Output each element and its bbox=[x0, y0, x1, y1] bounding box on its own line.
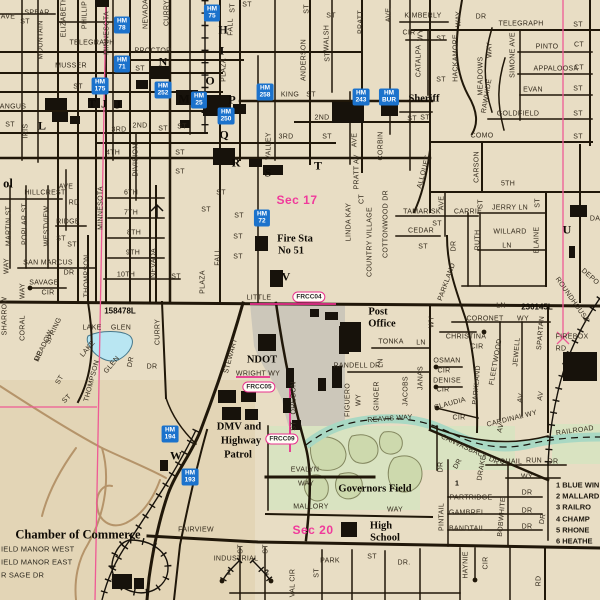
street-label-minnesota: MINNESOTA bbox=[104, 11, 111, 55]
street-label-firebox: FIREBOX bbox=[556, 334, 589, 341]
street-label-rd: RD bbox=[536, 576, 543, 587]
street-label-5th: 5TH bbox=[501, 181, 515, 188]
street-label-st: ST bbox=[67, 242, 77, 249]
map-canvas[interactable]: SPEARAVESTMOUNTAINELIZABETHPHILLIPMINNES… bbox=[0, 0, 600, 600]
street-label-san-marcus: SAN MARCUS bbox=[23, 260, 73, 267]
letter-label-o: O bbox=[205, 74, 214, 89]
street-label-st: ST bbox=[5, 122, 15, 129]
hm-marker-194: HM194 bbox=[162, 426, 179, 443]
street-label-cir: CIR bbox=[471, 344, 484, 351]
hm-marker-bur: HMBUR bbox=[379, 89, 399, 106]
hm-marker-75: HM75 bbox=[204, 5, 220, 22]
street-label-rd: RD bbox=[69, 200, 80, 207]
street-label-osman: OSMAN bbox=[433, 358, 460, 365]
letter-label-h: H bbox=[218, 23, 227, 38]
hm-marker-72: HM72 bbox=[254, 210, 270, 227]
street-label-ruth: RUTH bbox=[475, 230, 482, 251]
street-label-wy: WY bbox=[356, 394, 363, 406]
street-label-musser: MUSSER bbox=[55, 63, 87, 70]
hm-marker-252: HM252 bbox=[155, 82, 172, 99]
street-label-cir: CIR bbox=[453, 415, 466, 422]
street-label-st: ST bbox=[73, 84, 83, 91]
street-label-ln: LN bbox=[378, 358, 385, 368]
num-label-1: 1 bbox=[227, 570, 231, 577]
street-label-rd: RD bbox=[556, 346, 567, 353]
street-label-ln: LN bbox=[502, 243, 512, 250]
street-label-glen: GLEN bbox=[111, 325, 131, 332]
letter-label-s: S bbox=[265, 166, 272, 181]
street-label-canvasback-dr: CANVASBACK DR bbox=[440, 433, 500, 466]
street-label-9th: 9TH bbox=[126, 250, 140, 257]
street-label-2nd: 2ND bbox=[133, 123, 148, 130]
poi-label-no-51: No 51 bbox=[278, 246, 304, 257]
street-label-run: RUN bbox=[526, 458, 542, 465]
letter-label-u: U bbox=[563, 223, 572, 238]
street-label-lake: LAKE bbox=[82, 325, 101, 332]
street-label-st: ST bbox=[135, 66, 145, 73]
street-label-st: ST bbox=[436, 36, 446, 43]
street-label-st: ST bbox=[322, 134, 332, 141]
street-label-industrial: INDUSTRIAL bbox=[214, 556, 259, 563]
street-label-walsh: WALSH bbox=[324, 25, 331, 51]
street-label-oregon: OREGON bbox=[291, 382, 298, 415]
street-label-haynie: HAYNIE bbox=[463, 551, 470, 578]
street-label-iris: IRIS bbox=[23, 124, 30, 139]
street-label-way: WAY bbox=[487, 42, 494, 58]
letter-label-n: N bbox=[159, 55, 168, 70]
street-label-dr: DR bbox=[34, 350, 45, 363]
street-label-wy: WY bbox=[429, 316, 436, 328]
street-label-st: ST bbox=[56, 236, 66, 243]
street-label-dr: DR. bbox=[398, 560, 411, 567]
letter-label-m: M bbox=[178, 92, 189, 107]
poi-label-post: Post bbox=[368, 307, 387, 318]
street-label-st: ST bbox=[326, 13, 336, 20]
street-label-st: ST bbox=[436, 77, 446, 84]
street-label-depo: DEPO bbox=[580, 267, 600, 286]
frcc-label-frcc05: FRCC05 bbox=[242, 382, 275, 393]
street-label-st: ST bbox=[216, 190, 226, 197]
street-label-lake: LAKE bbox=[79, 339, 97, 358]
street-label-sharrow: SHARROW bbox=[2, 297, 9, 336]
street-label-dr: DR bbox=[548, 459, 559, 466]
street-label-ginger: GINGER bbox=[374, 381, 381, 410]
manor-label-ield-manor-east: IELD MANOR EAST bbox=[1, 558, 72, 567]
street-label-8th: 8TH bbox=[127, 230, 141, 237]
street-label-minnesota: MINNESOTA bbox=[98, 186, 105, 230]
poi-label-governors-field: Governors Field bbox=[338, 484, 411, 495]
street-label-st: ST bbox=[263, 544, 270, 554]
street-label-pratt-av: PRATT AV bbox=[354, 154, 361, 189]
street-label-st: ST bbox=[175, 150, 185, 157]
street-label-dr: DR bbox=[64, 270, 75, 277]
street-label-elaine: ELAINE bbox=[534, 227, 541, 254]
street-label-6th: 6TH bbox=[124, 190, 138, 197]
poi-label-high: High bbox=[370, 521, 392, 532]
street-label-claudia: CLAUDIA bbox=[433, 396, 466, 411]
sec-label-sec-17: Sec 17 bbox=[276, 193, 317, 207]
street-label-dr: DR bbox=[522, 524, 533, 531]
frcc-label-frcc09: FRCC09 bbox=[265, 434, 298, 445]
hm-marker-25: HM25 bbox=[191, 92, 207, 109]
street-label-way: WAY bbox=[20, 283, 27, 299]
street-label-fleetwood: FLEETWOOD bbox=[488, 338, 503, 386]
street-label-st: ST bbox=[55, 374, 66, 386]
street-label-partridge: PARTRIDGE bbox=[450, 495, 493, 502]
street-label-ave: AVE bbox=[59, 184, 73, 191]
street-label-tonka: TONKA bbox=[378, 339, 404, 346]
street-label-val-cir: VAL CIR bbox=[290, 569, 297, 598]
street-label-carrie: CARRIE bbox=[454, 209, 482, 216]
street-label-ln: LN bbox=[416, 340, 426, 347]
frcc-label-frcc04: FRCC04 bbox=[292, 292, 325, 303]
street-label-catalpa: CATALPA bbox=[416, 45, 423, 77]
street-label-kimberly: KIMBERLY bbox=[404, 13, 441, 20]
street-label-phillip: PHILLIP bbox=[82, 1, 89, 29]
street-label-way: WAY bbox=[298, 481, 314, 488]
street-label-st: ST bbox=[573, 22, 583, 29]
street-label-wy: WY bbox=[521, 474, 533, 481]
street-label-st: ST bbox=[177, 124, 187, 131]
street-label-way: WAY bbox=[387, 507, 403, 514]
street-label-savage: SAVAGE bbox=[29, 280, 59, 287]
street-label-railroad: RAILROAD bbox=[556, 425, 595, 437]
street-label-christina: CHRISTINA bbox=[446, 334, 486, 341]
street-label-st: ST bbox=[233, 234, 243, 241]
street-label-hackamore: HACKAMORE bbox=[453, 34, 460, 82]
street-label-st: ST bbox=[478, 199, 485, 209]
letter-label-p: P bbox=[228, 93, 235, 108]
street-label-st: ST bbox=[20, 19, 30, 26]
street-label-gambrel: GAMBREL bbox=[449, 510, 485, 517]
street-label-7th: 7TH bbox=[124, 210, 138, 217]
street-label-dr: DR bbox=[147, 364, 158, 371]
street-label-quail: QUAIL bbox=[500, 459, 523, 466]
street-label-wright-wy: WRIGHT WY bbox=[236, 371, 280, 378]
street-label-ct: CT bbox=[574, 42, 584, 49]
street-label-st: ST bbox=[61, 393, 73, 405]
street-label-poplar-st: POPLAR ST bbox=[22, 203, 29, 245]
street-label-cottonwood-dr: COTTONWOOD DR bbox=[383, 190, 390, 258]
manor-label-r-sage-dr: R SAGE DR bbox=[1, 571, 44, 580]
street-label-st: ST bbox=[418, 244, 428, 251]
legend-item-3: 3 RAILRO bbox=[556, 503, 591, 512]
street-label-ct: CT bbox=[359, 194, 366, 204]
street-label-wy: WY bbox=[418, 29, 425, 41]
street-label-mountain: MOUNTAIN bbox=[38, 20, 45, 59]
street-label-ave: AVE bbox=[352, 133, 359, 147]
street-label-st: ST bbox=[175, 169, 185, 176]
street-label-pratt: PRATT bbox=[358, 10, 365, 34]
letter-label-q: Q bbox=[219, 128, 228, 143]
street-label-janas: JANAS bbox=[418, 366, 425, 390]
street-label-st: ST bbox=[573, 134, 583, 141]
street-label-jewell: JEWELL bbox=[512, 337, 522, 367]
street-label-wy: WY bbox=[517, 316, 529, 323]
street-label-st: ST bbox=[420, 115, 430, 122]
street-label-country-village: COUNTRY VILLAGE bbox=[367, 207, 374, 277]
poi-label-fire-sta: Fire Sta bbox=[277, 234, 313, 245]
street-label-av: AV bbox=[517, 393, 526, 403]
street-label-cir: CIR bbox=[483, 557, 490, 570]
ref-label-230145l: 230145L bbox=[521, 303, 553, 312]
street-label-stewart: STEWART bbox=[223, 338, 239, 375]
street-label-st: ST bbox=[304, 4, 311, 14]
street-label-willard: WILLARD bbox=[493, 229, 526, 236]
street-label-angus: ANGUS bbox=[0, 104, 26, 111]
street-label-ln: LN bbox=[496, 303, 506, 310]
street-label-st: ST bbox=[230, 3, 237, 13]
street-label-dr: DR bbox=[438, 462, 445, 473]
street-label-randell-dr: RANDELL DR bbox=[333, 363, 380, 370]
street-label-thompson: THOMPSON bbox=[83, 359, 101, 402]
street-label-10th: 10TH bbox=[117, 272, 135, 279]
street-label-denise: DENISE bbox=[433, 378, 461, 385]
street-label-martin-st: MARTIN ST bbox=[6, 206, 13, 246]
street-label-coronet: CORONET bbox=[466, 316, 503, 323]
street-label-da: DA bbox=[590, 216, 600, 223]
street-label-thompson: THOMPSON bbox=[84, 255, 91, 298]
street-label-fairview: FAIRVIEW bbox=[178, 527, 214, 534]
street-label-cir: CIR bbox=[437, 387, 450, 394]
street-label-fall: FALL bbox=[228, 18, 235, 36]
street-label-nevada: NEVADA bbox=[151, 248, 158, 278]
street-label-pintail: PINTAIL bbox=[439, 503, 446, 531]
street-label-como: COMO bbox=[471, 133, 494, 140]
street-label-proctor: PROCTOR bbox=[135, 48, 172, 55]
street-label-st: ST bbox=[306, 92, 316, 99]
street-label-st: ST bbox=[432, 221, 442, 228]
street-label-3rd: 3RD bbox=[279, 134, 294, 141]
street-label-dr: DR bbox=[522, 490, 533, 497]
street-label-spartan: SPARTAN bbox=[536, 316, 546, 350]
street-label-cir: CIR bbox=[42, 290, 55, 297]
legend-item-4: 4 CHAMP bbox=[556, 514, 590, 523]
poi-label-sheriff: Sheriff bbox=[409, 94, 440, 105]
street-label-dr: DR bbox=[452, 458, 463, 471]
poi2-label-ol: ol bbox=[3, 177, 13, 192]
street-label-dr: DR bbox=[127, 356, 136, 368]
ref-label-158478l: 158478L bbox=[104, 307, 136, 316]
street-label-ridge: RIDGE bbox=[56, 219, 80, 226]
street-label-mallory: MALLORY bbox=[293, 504, 328, 511]
letter-label-w: W bbox=[170, 449, 182, 464]
street-label-division: DIVISION bbox=[133, 143, 140, 176]
street-label-valley: VALLEY bbox=[266, 132, 273, 160]
map-label-layer: SPEARAVESTMOUNTAINELIZABETHPHILLIPMINNES… bbox=[0, 0, 600, 600]
street-label-coral: CORAL bbox=[20, 315, 27, 341]
street-label-park: PARK bbox=[320, 558, 340, 565]
poi2-label-chamber-of-commerce: Chamber of Commerce bbox=[15, 528, 140, 543]
poi-label-ndot: NDOT bbox=[247, 355, 277, 366]
street-label-nevada: NEVADA bbox=[143, 0, 150, 29]
street-label-st: ST bbox=[242, 2, 252, 9]
street-label-linda-kay: LINDA KAY bbox=[346, 203, 353, 241]
street-label-pinto: PINTO bbox=[536, 44, 559, 51]
letter-label-t: T bbox=[314, 159, 322, 174]
street-label-evan: EVAN bbox=[523, 87, 543, 94]
hm-marker-175: HM175 bbox=[92, 78, 109, 95]
street-label-jerry-ln: JERRY LN bbox=[492, 205, 528, 212]
street-label-cir: CIR bbox=[403, 30, 416, 37]
street-label-ave: AVE bbox=[386, 8, 393, 22]
letter-label-j: J bbox=[101, 97, 107, 112]
letter-label-j: J bbox=[115, 98, 121, 113]
street-label-3rd: 3RD bbox=[112, 127, 127, 134]
street-label-cir: CIR bbox=[438, 368, 451, 375]
letter-label-i: I bbox=[220, 44, 225, 59]
legend-item-6: 6 HEATHE bbox=[556, 537, 593, 546]
legend-item-2: 2 MALLARD bbox=[556, 492, 599, 501]
street-label-telegraph: TELEGRAPH bbox=[69, 40, 114, 47]
street-label-st: ST bbox=[291, 421, 298, 431]
letter-label-l: L bbox=[38, 119, 46, 134]
street-label-westview: WESTVIEW bbox=[44, 206, 51, 247]
street-label-4th: 4TH bbox=[106, 150, 120, 157]
manor-label-ield-manor-west: IELD MANOR WEST bbox=[1, 545, 74, 554]
street-label-av: AV bbox=[537, 391, 546, 401]
hm-marker-78: HM78 bbox=[114, 17, 130, 34]
poi-label-dmv-and: DMV and bbox=[217, 422, 261, 433]
street-label-st: ST bbox=[325, 52, 332, 62]
street-label-corbin: CORBIN bbox=[378, 131, 385, 160]
street-label-figuero: FIGUERO bbox=[345, 383, 352, 417]
street-label-curry: CURRY bbox=[164, 0, 171, 26]
street-label-st: ST bbox=[573, 111, 583, 118]
street-label-jacobs: JACOBS bbox=[403, 376, 410, 406]
street-label-2nd: 2ND bbox=[315, 115, 330, 122]
hm-marker-258: HM258 bbox=[257, 84, 274, 101]
poi-label-patrol: Patrol bbox=[224, 450, 252, 461]
num-label-1: 1 bbox=[455, 481, 459, 488]
street-label-ave: AVE bbox=[1, 14, 15, 21]
street-label-st: ST bbox=[314, 568, 321, 578]
legend-item-5: 5 RHONE bbox=[556, 525, 589, 534]
hm-marker-250: HM250 bbox=[218, 108, 235, 125]
street-label-fall: FALL bbox=[215, 248, 222, 266]
street-label-st: ST bbox=[201, 207, 211, 214]
street-label-carson: CARSON bbox=[474, 151, 481, 183]
street-label-st: ST bbox=[171, 274, 181, 281]
street-label-parkland: PARKLAND bbox=[472, 365, 482, 405]
hm-marker-193: HM193 bbox=[182, 469, 199, 486]
letter-label-t: T bbox=[88, 97, 96, 112]
poi-label-highway: Highway bbox=[221, 436, 261, 447]
street-label-st: ST bbox=[158, 126, 168, 133]
street-label-curry: CURRY bbox=[155, 319, 162, 345]
num-label-2: 2 bbox=[265, 570, 269, 577]
street-label-tamarisk: TAMARISK bbox=[403, 209, 441, 216]
sec-label-sec-20: Sec 20 bbox=[292, 523, 333, 537]
letter-label-v: V bbox=[282, 270, 291, 285]
street-label-st: ST bbox=[407, 116, 417, 123]
street-label-drake: DRAKE bbox=[476, 455, 487, 481]
legend-item-1: 1 BLUE WIN bbox=[556, 481, 599, 490]
hm-marker-243: HM243 bbox=[353, 89, 370, 106]
street-label-appaloosa: APPALOOSA bbox=[534, 66, 579, 73]
street-label-dr: DR bbox=[539, 513, 548, 525]
street-label-roundhouse: ROUNDHOUSE bbox=[554, 276, 590, 324]
street-label-way: WAY bbox=[456, 11, 463, 27]
hm-marker-71: HM71 bbox=[114, 56, 130, 73]
street-label-goldfield: GOLDFIELD bbox=[497, 111, 539, 118]
street-label-spear: SPEAR bbox=[24, 10, 49, 17]
street-label-st: ST bbox=[535, 198, 542, 208]
street-label-parkland: PARKLAND bbox=[437, 262, 457, 302]
street-label-st: ST bbox=[234, 213, 244, 220]
street-label-king: KING bbox=[281, 92, 299, 99]
street-label-plaza: PLAZA bbox=[221, 58, 228, 82]
street-label-reavis-way: REAVIS WAY bbox=[367, 414, 413, 424]
street-label-elizabeth: ELIZABETH bbox=[61, 0, 68, 37]
street-label-little: LITTLE bbox=[247, 295, 272, 302]
street-label-plaza: PLAZA bbox=[200, 270, 207, 294]
poi-label-school: School bbox=[370, 533, 400, 544]
letter-label-r: R bbox=[232, 156, 241, 171]
street-label-glen: GLEN bbox=[103, 355, 121, 375]
street-label-dr: DR bbox=[476, 14, 487, 21]
street-label-cardinal-wy: CARDINAL WY bbox=[486, 409, 538, 428]
street-label-hillcrest: HILLCREST bbox=[24, 190, 65, 197]
street-label-dr: DR bbox=[451, 241, 458, 252]
street-label-allouet: ALLOUET bbox=[416, 155, 432, 190]
street-label-bobwhite: BOBWHITE bbox=[497, 497, 507, 537]
street-label-way: WAY bbox=[4, 258, 11, 274]
street-label-st: ST bbox=[238, 544, 245, 554]
street-label-bandtail: BANDTAIL bbox=[449, 526, 485, 533]
street-label-evalyn: EVALYN bbox=[291, 467, 319, 474]
street-label-cedar: CEDAR bbox=[408, 228, 434, 235]
poi-label-office: Office bbox=[368, 319, 395, 330]
street-label-ct: CT bbox=[574, 65, 584, 72]
street-label-dr: DR bbox=[522, 508, 533, 515]
street-label-simone-ave: SIMONE AVE bbox=[510, 32, 517, 78]
street-label-anderson: ANDERSON bbox=[301, 39, 308, 81]
street-label-st: ST bbox=[367, 554, 377, 561]
street-label-telegraph: TELEGRAPH bbox=[498, 21, 543, 28]
street-label-st: ST bbox=[573, 86, 583, 93]
street-label-st: ST bbox=[233, 254, 243, 261]
